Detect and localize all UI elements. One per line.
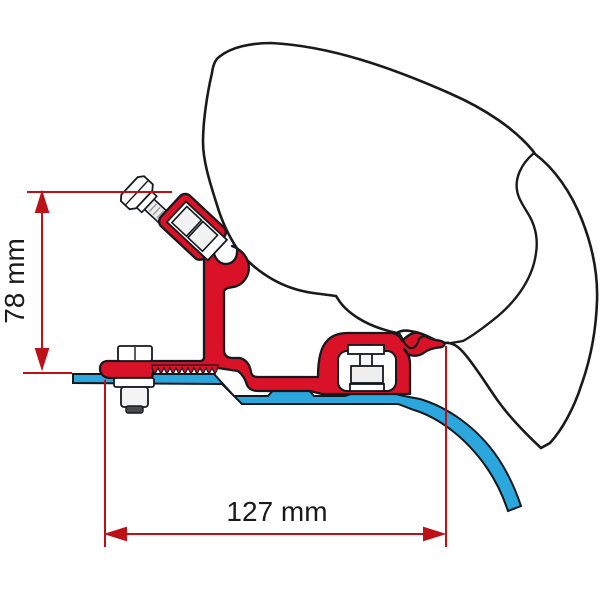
rail-bolt-end-cap: [126, 406, 143, 413]
width-dim-arrow-right: [424, 528, 443, 540]
channel-bolt-bottom-plate: [350, 384, 384, 391]
height-dim-arrow-up: [36, 193, 48, 212]
channel-bolt-nut: [351, 366, 383, 383]
height-dim-arrow-down: [36, 349, 48, 368]
channel-bolt: [338, 345, 396, 391]
adapter-diagram: 78 mm 127 mm: [0, 0, 600, 600]
technical-drawing-canvas: 78 mm 127 mm: [0, 0, 600, 600]
height-dimension-label: 78 mm: [0, 238, 30, 324]
channel-bolt-top-plate: [348, 345, 384, 354]
width-dimension-label: 127 mm: [226, 496, 327, 527]
rail-bolt-nut-cylinder: [121, 387, 148, 407]
bracket-serrations: [152, 365, 218, 374]
rail-bolt-washer: [114, 378, 154, 387]
rail-bolt: [114, 346, 154, 413]
width-dim-arrow-left: [107, 528, 126, 540]
